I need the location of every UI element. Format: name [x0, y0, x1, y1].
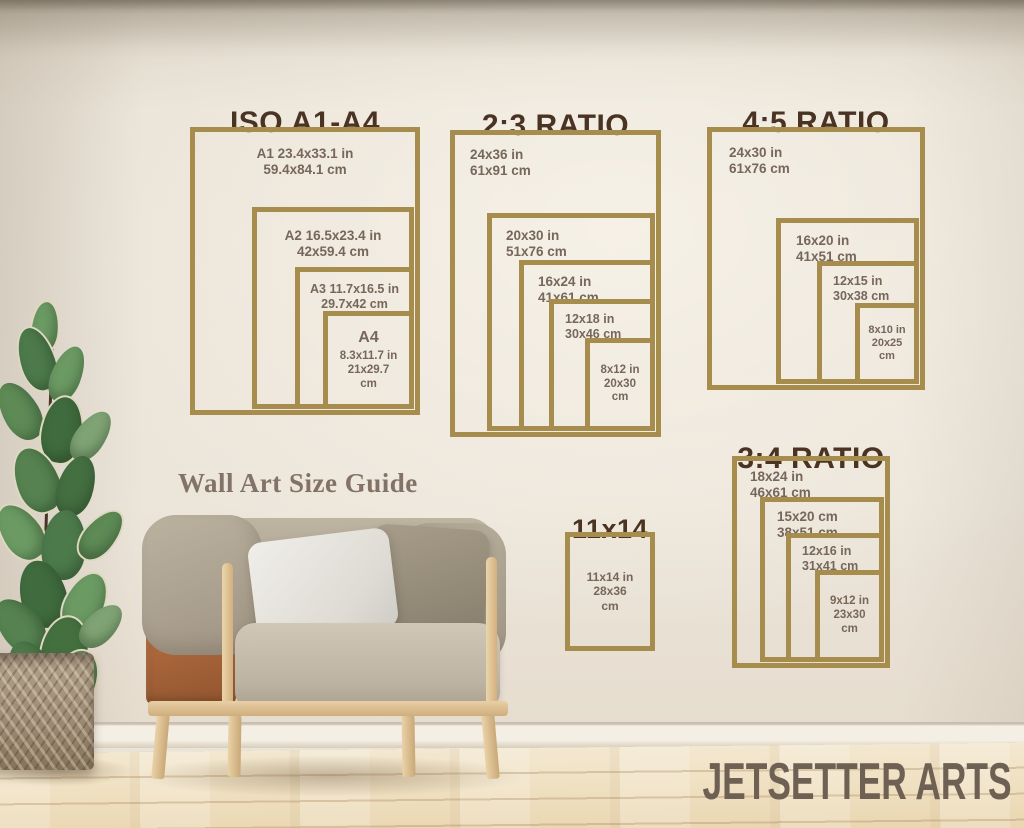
size-box-11x14: 11x14 in 28x36 cm [565, 532, 655, 651]
size-label-a3: A3 11.7x16.5 in 29.7x42 cm [300, 282, 409, 312]
group-iso-a1-a4: ISO A1-A4 A1 23.4x33.1 in 59.4x84.1 cm A… [190, 127, 420, 415]
chair-seat-cushion [235, 623, 500, 708]
size-label-9x12: 9x12 in 23x30 cm [820, 575, 879, 657]
chair-wood-rail [148, 701, 508, 716]
size-box-a4: A4 8.3x11.7 in 21x29.7 cm [323, 311, 414, 409]
size-label-a1: A1 23.4x33.1 in 59.4x84.1 cm [195, 146, 415, 178]
group-11x14: 11x14 11x14 in 28x36 cm [565, 532, 655, 651]
group-ratio-2-3: 2:3 RATIO 24x36 in 61x91 cm 20x30 in 51x… [450, 130, 661, 437]
size-label-11x14: 11x14 in 28x36 cm [570, 537, 650, 646]
brand-watermark: JETSETTER ARTS [703, 756, 1012, 808]
size-label-8x10: 8x10 in 20x25 cm [860, 308, 914, 379]
size-label-a2: A2 16.5x23.4 in 42x59.4 cm [257, 228, 409, 260]
size-box-9x12: 9x12 in 23x30 cm [815, 570, 884, 662]
size-label-a4: A4 8.3x11.7 in 21x29.7 cm [328, 316, 409, 404]
size-label-24x30: 24x30 in 61x76 cm [729, 145, 790, 177]
chair-leg [227, 715, 241, 777]
size-box-8x10: 8x10 in 20x25 cm [855, 303, 919, 384]
chair-shadow [135, 755, 525, 797]
group-ratio-3-4: 3:4 RATIO 18x24 in 46x61 cm 15x20 cm 38x… [732, 456, 890, 668]
plant-basket [0, 653, 94, 770]
size-box-8x12: 8x12 in 20x30 cm [585, 338, 655, 431]
size-label-12x15: 12x15 in 30x38 cm [833, 274, 889, 304]
armchair [130, 505, 530, 795]
size-label-24x36: 24x36 in 61x91 cm [470, 147, 531, 179]
chair-leg [401, 715, 415, 777]
group-ratio-4-5: 4:5 RATIO 24x30 in 61x76 cm 16x20 in 41x… [707, 127, 925, 390]
chair-wood-post [222, 563, 233, 705]
size-label-20x30: 20x30 in 51x76 cm [506, 228, 567, 260]
size-guide-heading: Wall Art Size Guide [178, 468, 418, 499]
chair-wood-post [486, 557, 497, 707]
room-scene: ISO A1-A4 A1 23.4x33.1 in 59.4x84.1 cm A… [0, 0, 1024, 828]
size-label-8x12: 8x12 in 20x30 cm [590, 343, 650, 426]
